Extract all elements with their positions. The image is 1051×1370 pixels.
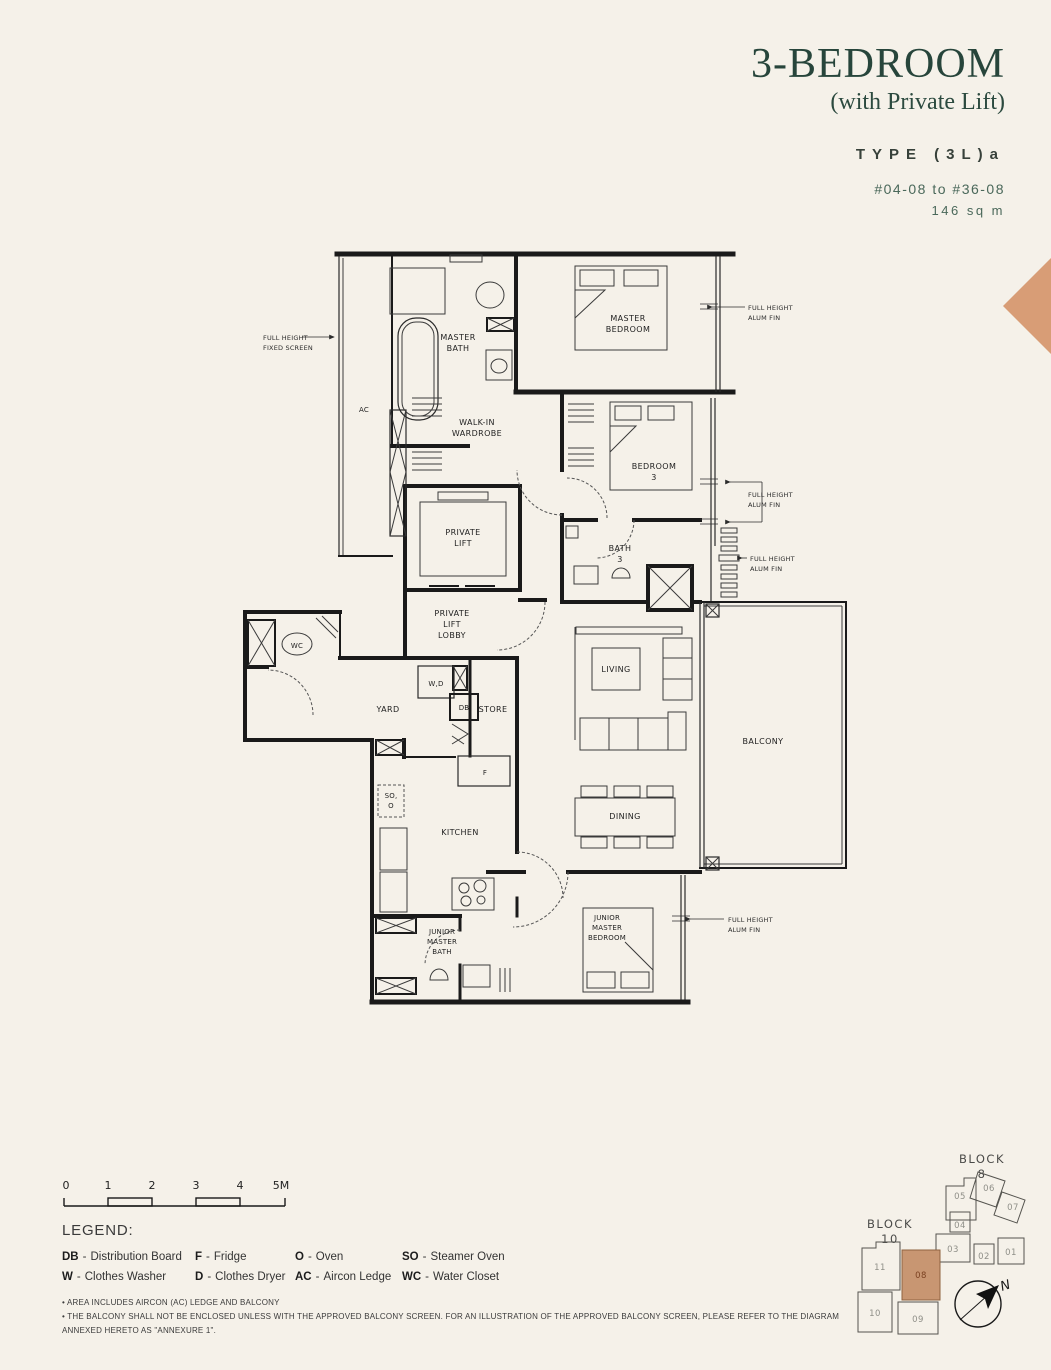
svg-text:1: 1 — [105, 1179, 112, 1192]
svg-text:08: 08 — [915, 1271, 927, 1281]
svg-text:09: 09 — [912, 1315, 924, 1325]
svg-text:ALUM FIN: ALUM FIN — [748, 314, 780, 322]
label-ac: AC — [359, 406, 369, 414]
svg-text:3: 3 — [651, 473, 657, 482]
svg-text:06: 06 — [983, 1184, 995, 1194]
label-private-lift: PRIVATE — [445, 528, 480, 537]
svg-text:MASTER: MASTER — [592, 924, 622, 932]
footnote: • AREA INCLUDES AIRCON (AC) LEDGE AND BA… — [62, 1296, 862, 1310]
svg-text:0: 0 — [63, 1179, 70, 1192]
svg-text:02: 02 — [978, 1252, 990, 1262]
svg-text:FULL HEIGHT: FULL HEIGHT — [748, 491, 793, 499]
legend-item: D-Clothes Dryer — [195, 1271, 295, 1291]
label-dining: DINING — [609, 812, 640, 821]
label-private-lift-lobby: PRIVATE — [434, 609, 469, 618]
svg-text:FULL HEIGHT: FULL HEIGHT — [748, 304, 793, 312]
label-store: STORE — [479, 705, 508, 714]
label-db: DB — [459, 704, 470, 712]
legend-heading: LEGEND: — [62, 1222, 622, 1239]
legend-item: AC-Aircon Ledge — [295, 1271, 402, 1291]
svg-text:WARDROBE: WARDROBE — [452, 429, 502, 438]
svg-text:10: 10 — [869, 1309, 881, 1319]
svg-text:ALUM FIN: ALUM FIN — [728, 926, 760, 934]
legend-item: WC-Water Closet — [402, 1271, 562, 1291]
label-junior-master-bath: JUNIOR — [428, 928, 455, 936]
annotation-fixed-screen: FULL HEIGHT FIXED SCREEN — [263, 334, 334, 352]
label-bedroom3: BEDROOM — [632, 462, 677, 471]
north-label: N — [999, 1277, 1013, 1294]
svg-text:FULL HEIGHT: FULL HEIGHT — [263, 334, 308, 342]
label-oven: O — [388, 802, 394, 810]
svg-text:4: 4 — [237, 1179, 244, 1192]
svg-text:ALUM FIN: ALUM FIN — [750, 565, 782, 573]
footnotes: • AREA INCLUDES AIRCON (AC) LEDGE AND BA… — [62, 1296, 862, 1338]
keyplan-block8: BLOCK 8 05 06 07 04 03 02 01 — [936, 1152, 1025, 1264]
corner-diamond-decoration — [1003, 258, 1051, 354]
label-steamer-oven: SO, — [385, 792, 398, 800]
svg-text:3: 3 — [617, 555, 623, 564]
label-walk-in-wardrobe: WALK-IN — [459, 418, 495, 427]
annotation-alum-fin-louver: FULL HEIGHT ALUM FIN — [742, 555, 795, 573]
svg-text:FIXED SCREEN: FIXED SCREEN — [263, 344, 313, 352]
junior-master-furniture — [500, 908, 653, 992]
svg-text:FULL HEIGHT: FULL HEIGHT — [750, 555, 795, 563]
alum-fin-louvers — [719, 528, 739, 597]
annotation-alum-fin-junior: FULL HEIGHT ALUM FIN — [672, 916, 773, 934]
annotation-alum-fin-master: FULL HEIGHT ALUM FIN — [700, 304, 793, 322]
legend-item: F-Fridge — [195, 1251, 295, 1271]
svg-text:03: 03 — [947, 1245, 959, 1255]
svg-text:05: 05 — [954, 1192, 966, 1202]
label-living: LIVING — [601, 665, 630, 674]
svg-text:MASTER: MASTER — [427, 938, 457, 946]
svg-text:3: 3 — [193, 1179, 200, 1192]
svg-text:2: 2 — [149, 1179, 156, 1192]
svg-text:FULL HEIGHT: FULL HEIGHT — [728, 916, 773, 924]
room-labels: MASTER BATH MASTER BEDROOM WALK-IN WARDR… — [291, 314, 784, 956]
label-fridge: F — [483, 769, 487, 777]
walls — [245, 254, 846, 1002]
annotation-alum-fin-bedroom3: FULL HEIGHT ALUM FIN — [700, 479, 793, 524]
wardrobe-shelves — [412, 398, 594, 470]
svg-text:07: 07 — [1007, 1203, 1019, 1213]
label-balcony: BALCONY — [743, 737, 784, 746]
svg-text:LIFT: LIFT — [454, 539, 472, 548]
label-master-bedroom: MASTER — [610, 314, 645, 323]
keyplan-block10: BLOCK 10 11 08 10 09 — [858, 1217, 940, 1334]
legend-item: O-Oven — [295, 1251, 402, 1271]
living-furniture — [575, 627, 692, 750]
master-bedroom-furniture — [575, 266, 667, 350]
north-arrow: N — [955, 1277, 1013, 1327]
legend-item: DB-Distribution Board — [62, 1251, 195, 1271]
label-wd: W,D — [428, 680, 443, 688]
svg-text:BATH: BATH — [447, 344, 470, 353]
scale-bar: 0 1 2 3 4 5M — [63, 1179, 290, 1206]
svg-text:10: 10 — [881, 1232, 899, 1246]
legend-item: SO-Steamer Oven — [402, 1251, 562, 1271]
label-kitchen: KITCHEN — [441, 828, 478, 837]
label-bath3: BATH — [609, 544, 632, 553]
label-junior-master-bedroom: JUNIOR — [593, 914, 620, 922]
svg-text:11: 11 — [874, 1263, 886, 1273]
svg-text:04: 04 — [954, 1221, 966, 1231]
label-master-bath: MASTER — [440, 333, 475, 342]
label-yard: YARD — [375, 705, 399, 714]
floor-plan-svg: MASTER BATH MASTER BEDROOM WALK-IN WARDR… — [0, 0, 1051, 1370]
svg-text:BATH: BATH — [432, 948, 451, 956]
svg-text:BLOCK: BLOCK — [959, 1152, 1005, 1166]
svg-text:BLOCK: BLOCK — [867, 1217, 913, 1231]
wall-corner-boxes — [706, 604, 719, 870]
legend-grid: DB-Distribution Board F-Fridge O-Oven SO… — [62, 1251, 622, 1291]
svg-text:01: 01 — [1005, 1248, 1017, 1258]
svg-text:LOBBY: LOBBY — [438, 631, 466, 640]
floorplan-page: 3-BEDROOM (with Private Lift) TYPE (3L)a… — [0, 0, 1051, 1370]
svg-text:5M: 5M — [273, 1179, 290, 1192]
svg-text:LIFT: LIFT — [443, 620, 461, 629]
svg-text:BEDROOM: BEDROOM — [588, 934, 626, 942]
footnote: • THE BALCONY SHALL NOT BE ENCLOSED UNLE… — [62, 1310, 862, 1338]
svg-text:ALUM FIN: ALUM FIN — [748, 501, 780, 509]
legend-item: W-Clothes Washer — [62, 1271, 195, 1291]
legend: LEGEND: DB-Distribution Board F-Fridge O… — [62, 1222, 622, 1291]
label-wc: WC — [291, 642, 303, 650]
svg-text:BEDROOM: BEDROOM — [606, 325, 651, 334]
